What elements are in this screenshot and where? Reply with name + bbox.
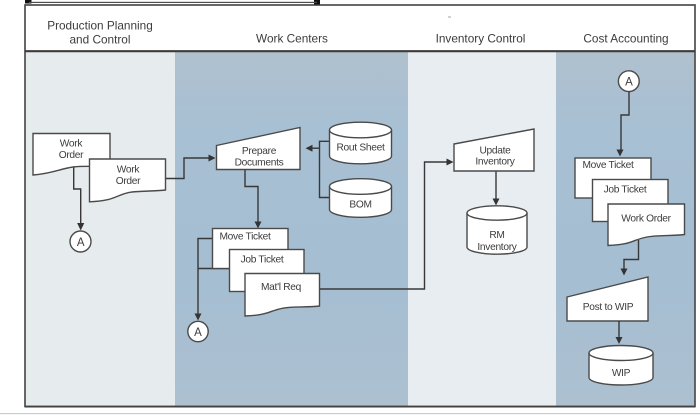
svg-text:Post to WIP: Post to WIP — [583, 302, 634, 313]
svg-text:Update: Update — [479, 146, 511, 157]
svg-text:RM: RM — [489, 230, 504, 241]
svg-text:Mat'l Req: Mat'l Req — [261, 282, 302, 293]
svg-text:BOM: BOM — [349, 200, 371, 211]
svg-text:Production Planning: Production Planning — [47, 19, 153, 33]
svg-text:Cost Accounting: Cost Accounting — [583, 32, 668, 46]
svg-text:Work: Work — [60, 139, 84, 150]
svg-text:Order: Order — [59, 150, 84, 161]
svg-text:Inventory: Inventory — [477, 242, 517, 253]
svg-text:Work Centers: Work Centers — [256, 31, 328, 45]
svg-text:A: A — [77, 237, 85, 249]
svg-text:Inventory Control: Inventory Control — [436, 32, 526, 46]
svg-text:Job Ticket: Job Ticket — [241, 255, 284, 266]
svg-text:Documents: Documents — [235, 157, 284, 168]
svg-text:WIP: WIP — [612, 368, 631, 379]
svg-text:and Control: and Control — [70, 32, 131, 46]
svg-text:Move Ticket: Move Ticket — [219, 232, 271, 243]
svg-text:A: A — [625, 77, 633, 89]
svg-text:A: A — [194, 327, 202, 339]
svg-text:Work Order: Work Order — [621, 214, 671, 225]
svg-text:Inventory: Inventory — [475, 157, 515, 168]
svg-text:Order: Order — [116, 176, 141, 187]
svg-text:Prepare: Prepare — [242, 146, 277, 157]
svg-text:Move Ticket: Move Ticket — [582, 160, 634, 171]
svg-text:Job Ticket: Job Ticket — [604, 184, 647, 195]
svg-text:Rout Sheet: Rout Sheet — [337, 143, 385, 154]
svg-text:Work: Work — [117, 165, 141, 176]
